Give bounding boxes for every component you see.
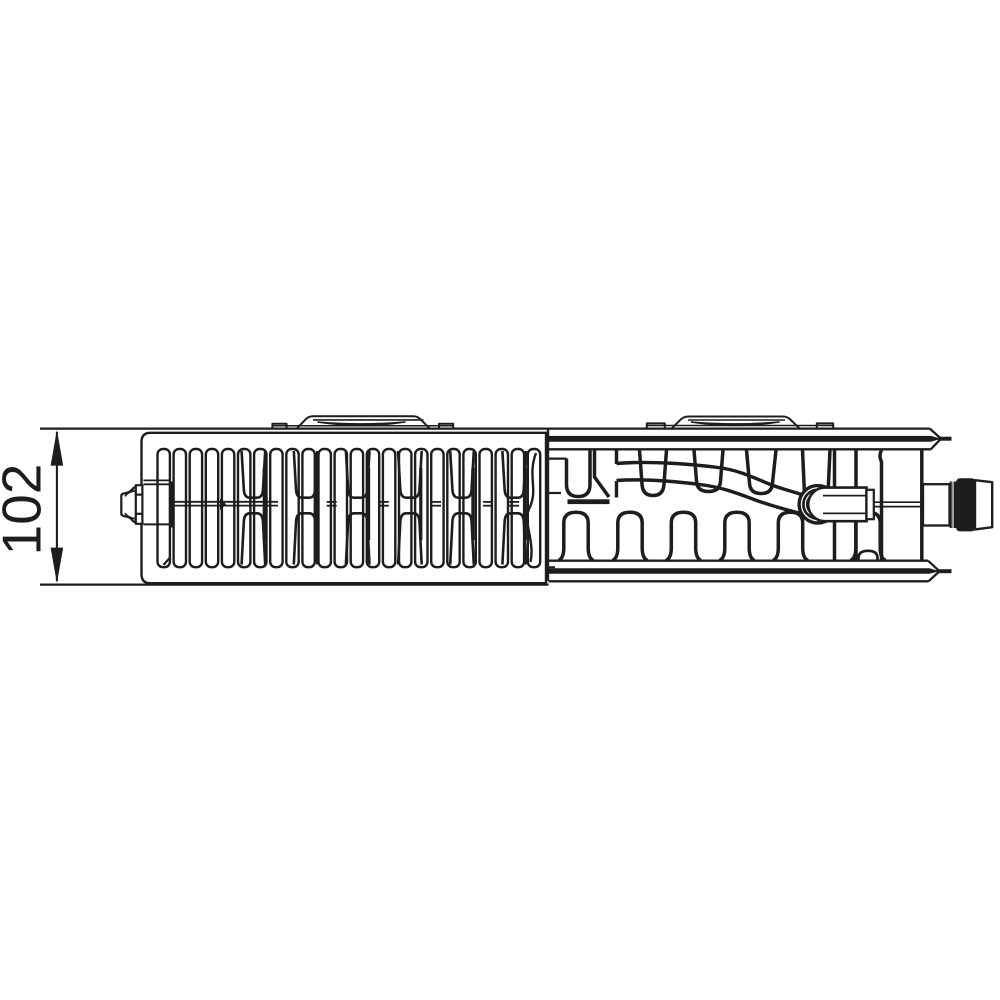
svg-text:102: 102 xyxy=(0,464,53,556)
